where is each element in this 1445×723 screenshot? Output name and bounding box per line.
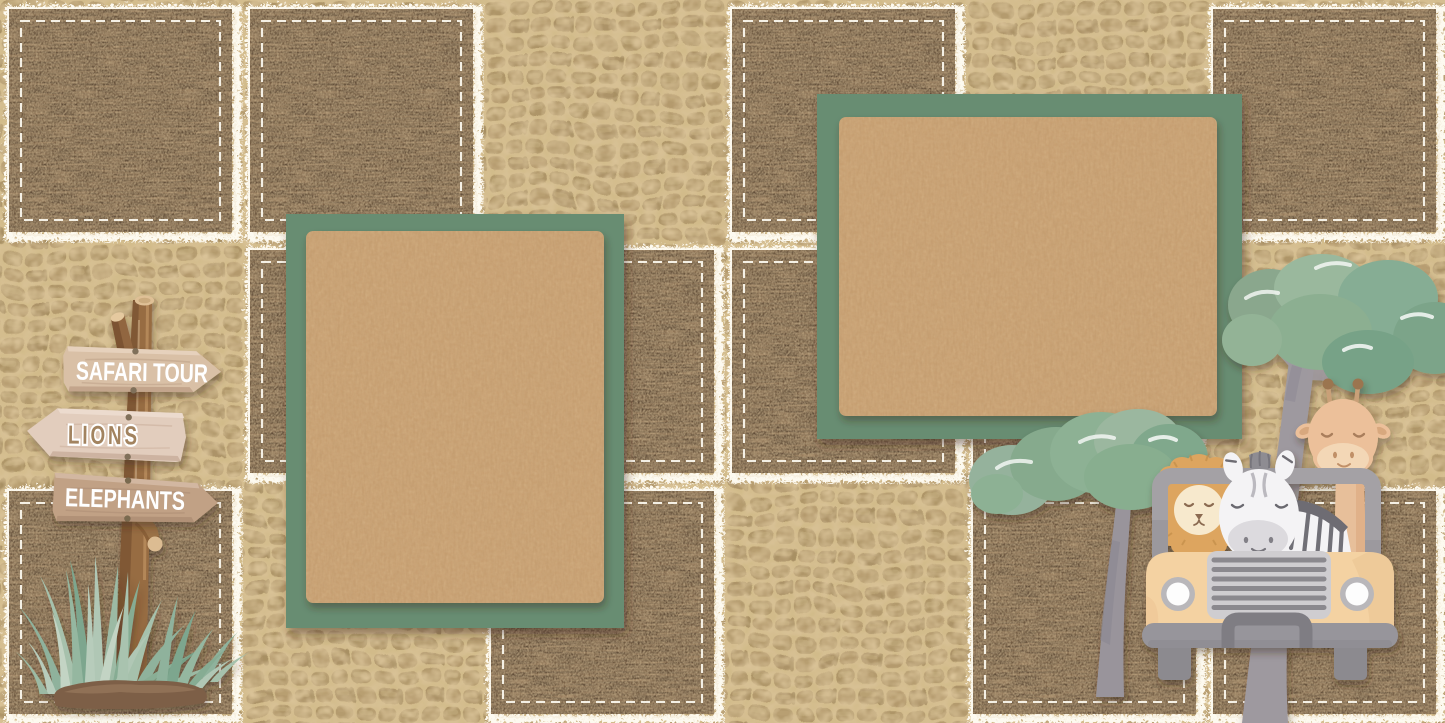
svg-text:SAFARI TOUR: SAFARI TOUR bbox=[76, 356, 209, 389]
svg-text:LIONS: LIONS bbox=[68, 419, 140, 450]
svg-text:ELEPHANTS: ELEPHANTS bbox=[65, 482, 186, 516]
